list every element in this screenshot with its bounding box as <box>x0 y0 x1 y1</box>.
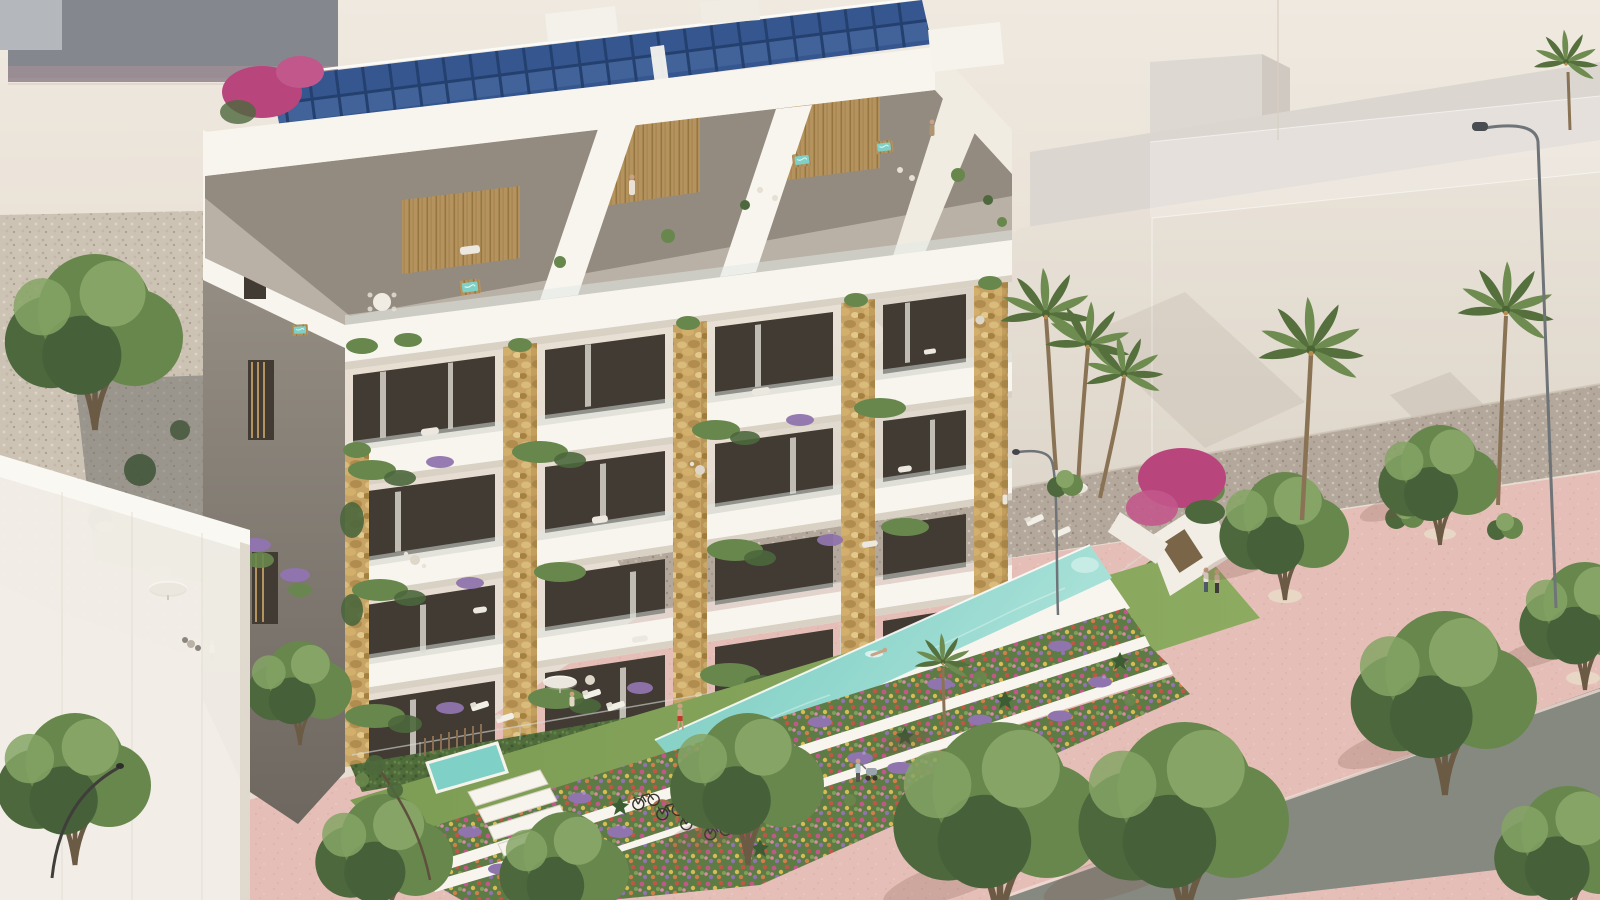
lamp-head-pool <box>1012 449 1020 455</box>
roof-box-3 <box>928 22 1004 72</box>
architectural-render <box>0 0 1600 900</box>
wall-edge-shade <box>240 542 250 900</box>
person-garden <box>570 692 575 707</box>
pool-steps <box>1071 557 1099 573</box>
roof-box-2 <box>700 0 760 24</box>
bougainvillea-leaves <box>1185 500 1225 524</box>
neighbor-building-light <box>0 0 62 50</box>
bougainvillea-garden-2 <box>1126 490 1178 526</box>
patio-table <box>187 640 195 648</box>
person-penthouse-right <box>930 120 935 125</box>
person-pool-deck <box>1003 490 1008 505</box>
render-canvas <box>0 0 1600 900</box>
end-terrace-hot-tub <box>292 324 309 336</box>
lamp-head-tall <box>1472 122 1488 131</box>
lamp-head-left <box>116 763 124 769</box>
person-penthouse-left <box>629 174 634 179</box>
